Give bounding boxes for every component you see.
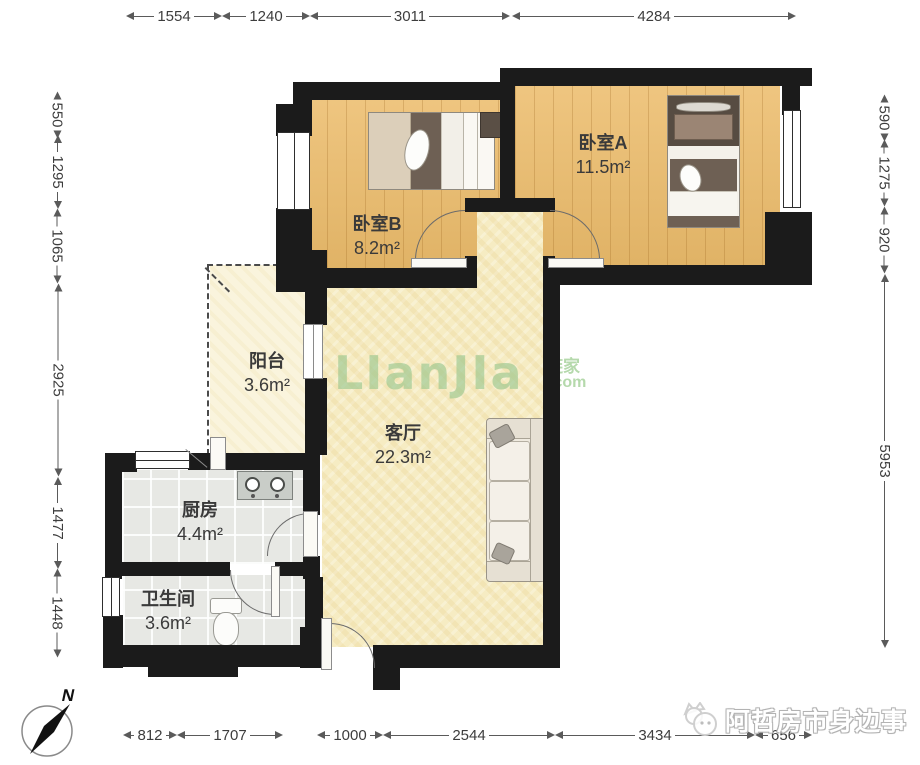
dim-value: 1275 — [877, 153, 892, 192]
stove-knob — [251, 494, 255, 498]
dim-value: 1707 — [210, 728, 249, 743]
dim-left-5: 1448 — [51, 569, 65, 658]
door-leaf-bedroom-b — [411, 258, 467, 268]
stove-knob — [275, 494, 279, 498]
dim-value: 5953 — [878, 441, 893, 480]
dim-value: 1554 — [154, 9, 193, 24]
room-name: 客厅 — [375, 422, 431, 445]
bed-footboard — [668, 216, 739, 227]
wall — [105, 562, 230, 576]
room-label-bedroom-b: 卧室B 8.2m² — [353, 213, 402, 259]
window-bathroom-left — [102, 577, 120, 617]
wall — [148, 655, 238, 677]
dim-value: 590 — [877, 103, 892, 134]
balcony-dashed-top — [207, 264, 279, 268]
bed-foot — [670, 191, 737, 216]
room-name: 卧室B — [353, 213, 402, 236]
wall — [305, 278, 327, 325]
dim-value: 2925 — [51, 360, 66, 399]
wall — [500, 86, 515, 200]
dim-left-0: 550 — [51, 92, 65, 135]
room-label-bathroom: 卫生间 3.6m² — [141, 588, 195, 634]
room-area: 3.6m² — [141, 612, 195, 635]
stove — [237, 471, 293, 500]
wall — [375, 645, 560, 668]
door-leaf-bedroom-a — [548, 258, 604, 268]
room-label-kitchen: 厨房 4.4m² — [177, 499, 223, 545]
dim-value: 812 — [134, 728, 165, 743]
door-leaf-bathroom — [271, 566, 280, 617]
watermark-badge: 阿哲房市身边事 — [681, 702, 907, 738]
dim-bottom-0: 812 — [123, 728, 177, 742]
dim-top-1: 1240 — [222, 9, 310, 23]
wall — [303, 453, 320, 515]
stove-burner — [270, 477, 285, 492]
window-kitchen-top — [135, 451, 190, 469]
dim-bottom-1: 1707 — [177, 728, 283, 742]
wall — [465, 198, 555, 212]
wall — [500, 68, 812, 86]
wall — [188, 453, 320, 470]
toilet — [210, 598, 242, 648]
wall — [782, 68, 800, 115]
dim-value: 3011 — [391, 9, 429, 24]
dim-value: 550 — [50, 100, 65, 131]
dim-right-3: 5953 — [878, 274, 892, 648]
window-balcony-slider — [303, 324, 323, 379]
badge-mascot-icon — [681, 702, 721, 738]
dim-value: 1065 — [50, 226, 65, 265]
room-label-balcony: 阳台 3.6m² — [244, 350, 290, 396]
dim-value: 3434 — [635, 728, 674, 743]
sofa — [486, 418, 545, 582]
room-area: 11.5m² — [576, 156, 631, 179]
dim-bottom-3: 2544 — [383, 728, 555, 742]
dim-left-2: 1065 — [51, 209, 65, 284]
dim-value: 1240 — [246, 9, 285, 24]
window-bedroom-a-right — [783, 110, 801, 208]
bed-headboard-line — [477, 113, 478, 189]
wall — [105, 453, 122, 579]
room-area: 8.2m² — [353, 237, 402, 260]
dim-top-3: 4284 — [512, 9, 796, 23]
room-area: 4.4m² — [177, 523, 223, 546]
dim-value: 2544 — [449, 728, 488, 743]
bed-bedroom-b — [368, 112, 495, 190]
room-name: 卧室A — [576, 132, 631, 155]
balcony-dashed-left — [207, 264, 211, 455]
sofa-cushion — [489, 481, 530, 521]
bed-sheet — [670, 146, 737, 159]
room-label-bedroom-a: 卧室A 11.5m² — [576, 132, 631, 178]
sofa-back — [530, 419, 544, 581]
wall — [276, 208, 312, 253]
room-label-living: 客厅 22.3m² — [375, 422, 431, 468]
bed-bedroom-a — [667, 95, 740, 228]
dim-value: 920 — [877, 224, 892, 255]
dim-right-1: 1275 — [878, 140, 892, 207]
dim-top-2: 3011 — [310, 9, 510, 23]
dim-right-0: 590 — [878, 95, 892, 140]
dim-left-1: 1295 — [51, 135, 65, 209]
wall — [543, 265, 560, 668]
bed-shelf — [676, 102, 731, 112]
window-bedroom-b-left — [277, 132, 310, 210]
door-leaf-kitchen — [303, 511, 318, 557]
stove-burner — [245, 477, 260, 492]
wall — [373, 645, 400, 690]
room-name: 卫生间 — [141, 588, 195, 611]
wall — [293, 82, 312, 136]
bed-pillow-block — [674, 114, 733, 140]
door-leaf-balcony — [210, 437, 226, 470]
wall — [765, 212, 812, 285]
toilet-bowl — [213, 612, 239, 646]
lianjia-watermark: LIanJIa — [334, 346, 524, 400]
dim-right-2: 920 — [878, 207, 892, 274]
bed-sheet — [441, 113, 463, 189]
dim-left-4: 1477 — [51, 477, 65, 569]
wall — [293, 82, 502, 100]
wall — [303, 556, 320, 579]
dim-top-0: 1554 — [126, 9, 222, 23]
dim-value: 1448 — [50, 593, 65, 632]
floor-plan: LIanJIa 链家 .com — [0, 0, 920, 765]
compass-icon — [14, 682, 86, 762]
dim-left-3: 2925 — [52, 284, 66, 477]
dim-value: 1477 — [51, 503, 66, 542]
wall — [305, 378, 327, 455]
dim-bottom-2: 1000 — [317, 728, 383, 742]
dim-value: 4284 — [634, 9, 673, 24]
room-name: 厨房 — [177, 499, 223, 522]
room-name: 阳台 — [244, 350, 290, 373]
nightstand-bedroom-b — [480, 112, 502, 138]
dim-value: 1295 — [51, 152, 66, 191]
room-area: 22.3m² — [375, 446, 431, 469]
door-leaf-entry — [321, 618, 332, 670]
badge-text: 阿哲房市身边事 — [725, 702, 907, 738]
dim-value: 1000 — [330, 728, 369, 743]
room-area: 3.6m² — [244, 374, 290, 397]
